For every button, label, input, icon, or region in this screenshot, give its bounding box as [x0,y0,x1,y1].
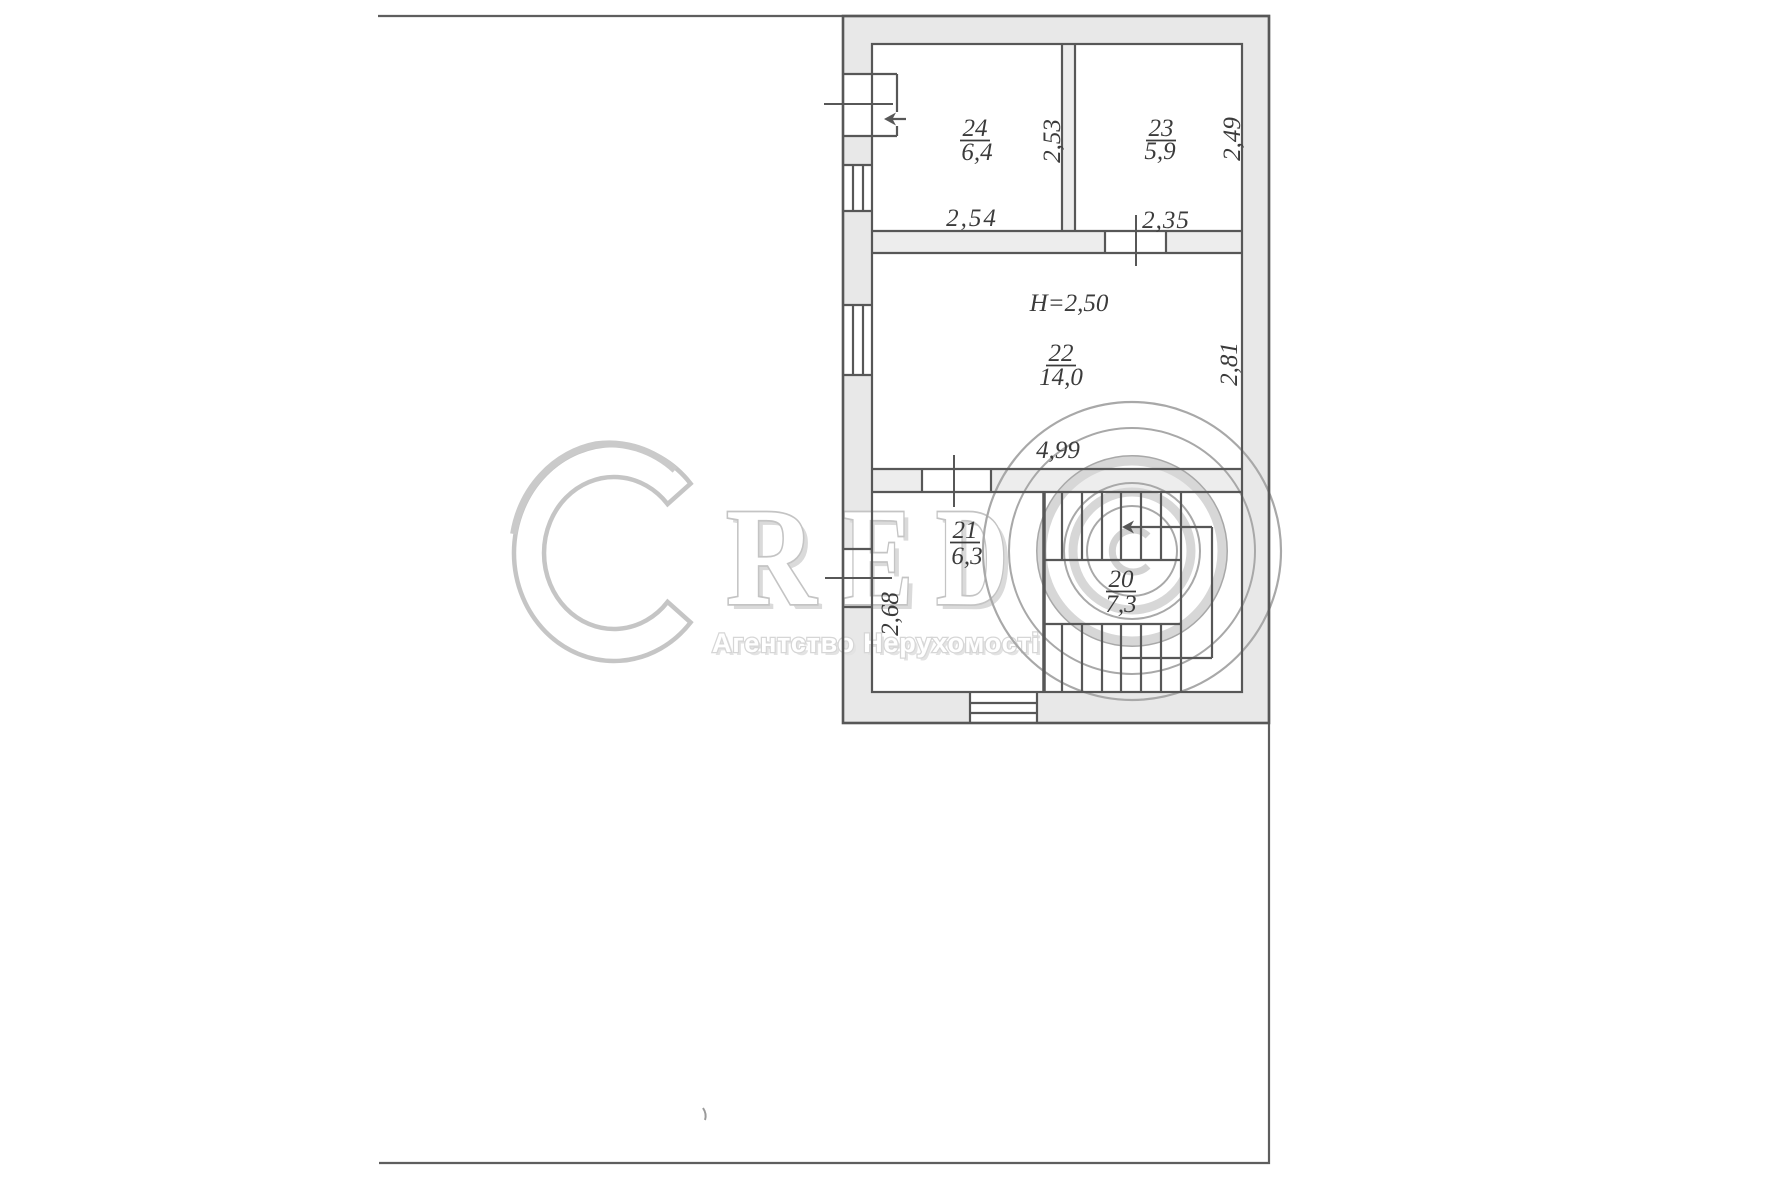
svg-text:6,3: 6,3 [951,543,982,570]
svg-text:5,9: 5,9 [1144,138,1176,165]
svg-text:2,54: 2,54 [946,205,998,232]
svg-text:2,68: 2,68 [877,592,904,636]
svg-text:2,49: 2,49 [1219,117,1246,161]
svg-text:24: 24 [963,115,988,142]
svg-text:2,35: 2,35 [1142,207,1190,234]
svg-text:21: 21 [953,517,978,544]
svg-text:6,4: 6,4 [961,139,992,166]
svg-text:20: 20 [1109,566,1135,593]
svg-text:2,81: 2,81 [1216,342,1243,386]
svg-text:Агентство Нерухомості: Агентство Нерухомості [712,628,1039,658]
svg-text:2,53: 2,53 [1039,119,1066,163]
svg-text:R: R [726,480,818,635]
svg-text:4,99: 4,99 [1036,437,1080,464]
svg-text:22: 22 [1049,340,1074,367]
svg-text:H=2,50: H=2,50 [1029,290,1109,317]
svg-text:14,0: 14,0 [1039,364,1083,391]
svg-text:7,3: 7,3 [1105,591,1136,618]
